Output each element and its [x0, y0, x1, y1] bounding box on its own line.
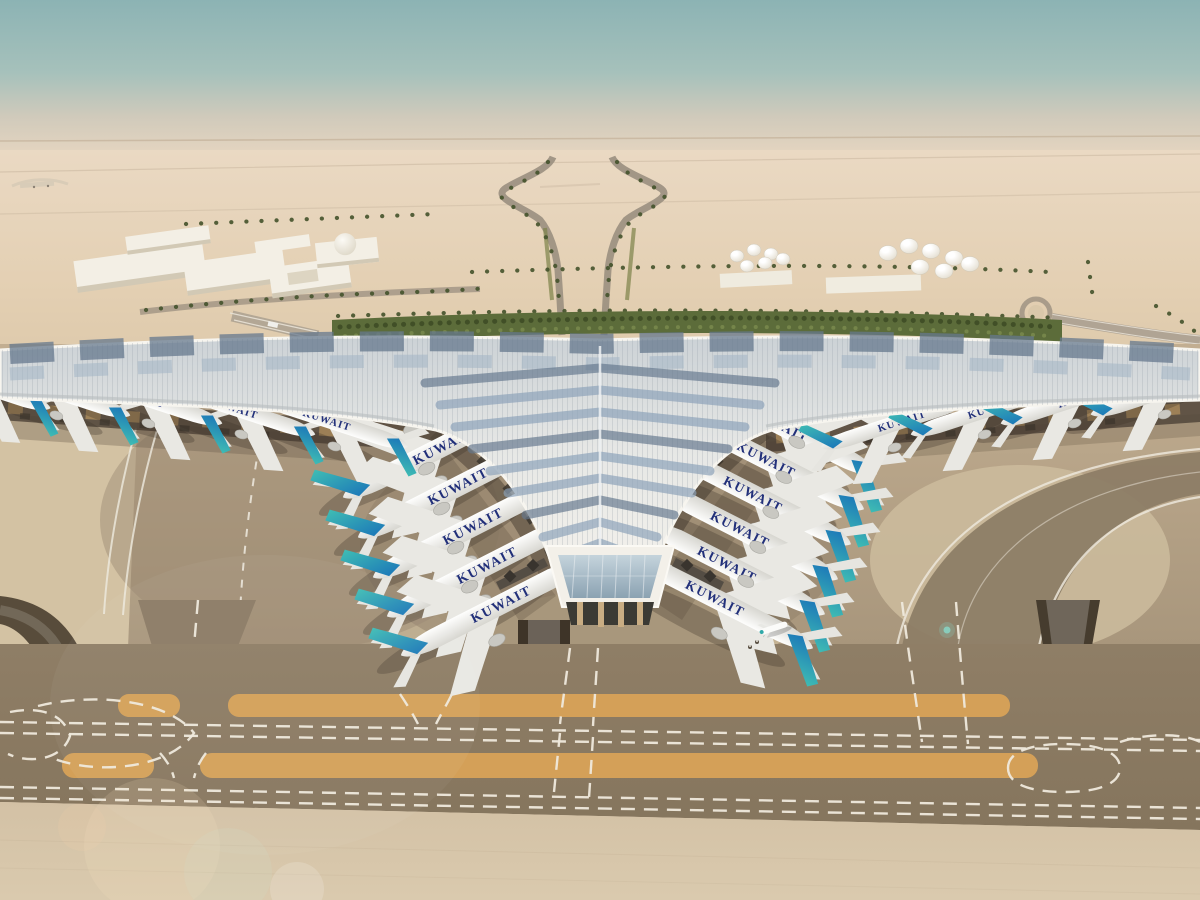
- fuel-tank: [911, 260, 929, 275]
- fuel-tank: [776, 253, 790, 265]
- fuel-tank: [945, 251, 963, 266]
- fuel-tank: [758, 257, 772, 269]
- fuel-tank: [747, 244, 761, 256]
- entrance-column: [618, 602, 624, 627]
- entrance-column: [577, 602, 583, 625]
- entrance-column: [637, 602, 643, 625]
- airport-scene: KUWAIT KUWAIT KUWAIT KUWAIT KUWAIT KUWAI…: [0, 0, 1200, 900]
- fuel-tank: [730, 250, 744, 262]
- service-building: [826, 274, 922, 293]
- fuel-tank: [935, 264, 953, 279]
- airport-render: KUWAIT KUWAIT KUWAIT KUWAIT KUWAIT KUWAI…: [0, 0, 1200, 900]
- entrance-column: [598, 602, 604, 627]
- sky: [0, 0, 1200, 162]
- fuel-tank: [900, 239, 918, 254]
- fuel-tank: [740, 260, 754, 272]
- fuel-tank: [961, 257, 979, 272]
- fuel-tank: [879, 246, 897, 261]
- fuel-tank: [922, 244, 940, 259]
